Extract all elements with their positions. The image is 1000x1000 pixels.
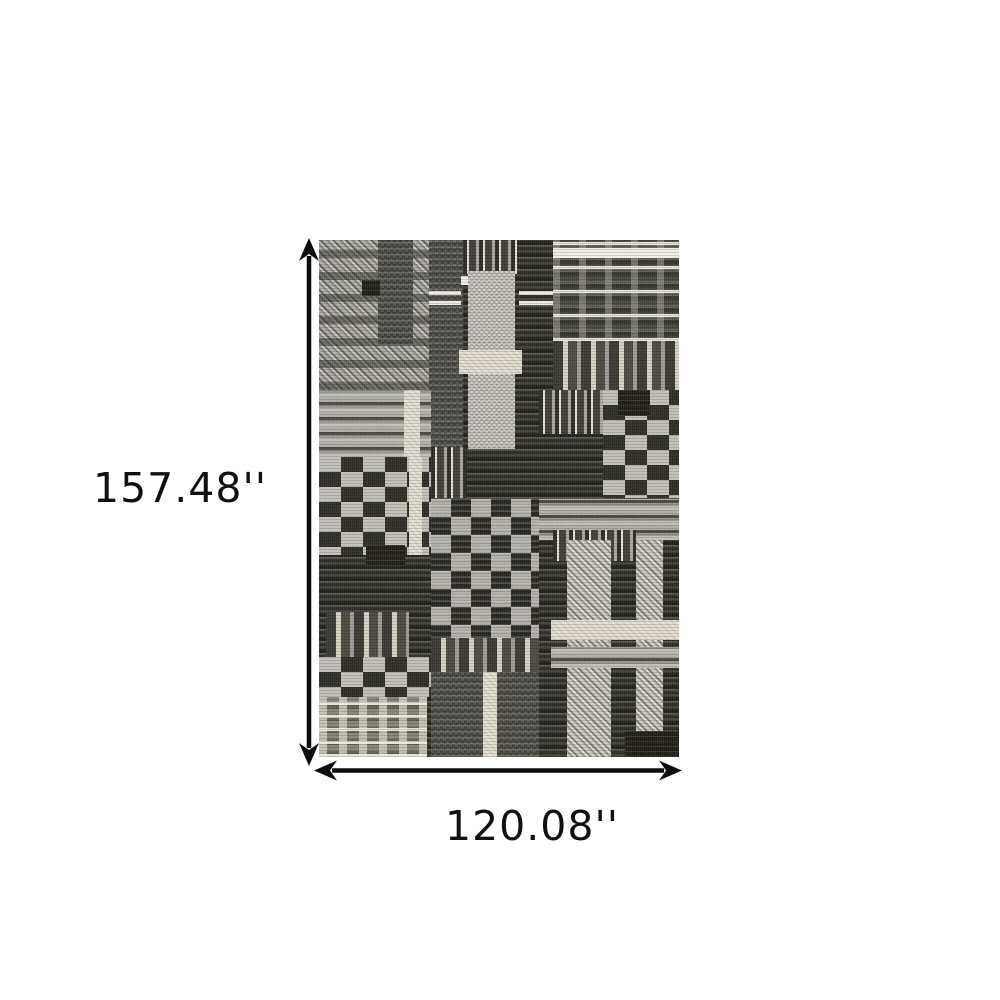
rug-patch-cream xyxy=(483,672,497,757)
rug-patch-cream xyxy=(404,390,420,457)
rug-patch-blocks-grid xyxy=(431,499,539,639)
rug-image xyxy=(319,240,679,757)
rug-patch-whiteband xyxy=(553,248,679,258)
rug-patch-darkcol xyxy=(429,240,463,452)
rug-patch-black xyxy=(625,731,679,757)
rug-patch-hwhite xyxy=(519,289,553,305)
rug-patch-hlight xyxy=(551,647,679,668)
vertical-dimension-arrow xyxy=(296,236,322,768)
product-dimension-diagram: 157.48'' 120.08'' xyxy=(0,0,1000,1000)
rug-patch-vstripes xyxy=(431,638,539,672)
horizontal-dimension-arrow xyxy=(312,757,684,784)
rug-patch-cream xyxy=(459,350,522,374)
rug-patch-vfine xyxy=(431,447,467,499)
rug-patch-black xyxy=(362,280,380,296)
rug-patch-vstripes xyxy=(553,341,679,393)
width-dimension-label: 120.08'' xyxy=(445,802,619,850)
rug-patch-diag xyxy=(319,240,431,390)
rug-patch-vfine xyxy=(539,390,604,434)
rug-patch-black xyxy=(366,545,406,566)
height-dimension-label: 157.48'' xyxy=(93,464,267,512)
rug-patch-hwhite xyxy=(429,289,461,305)
rug-patch-vfine xyxy=(463,240,517,274)
rug-patch-black xyxy=(618,390,650,416)
rug-patch-vstripes xyxy=(326,612,409,656)
rug-patch-cream xyxy=(551,620,679,640)
rug-patch-check xyxy=(319,697,427,757)
rug-patch-darkcol xyxy=(378,240,412,346)
rug-patch-cream xyxy=(409,457,422,555)
rug-patch-blocks-light xyxy=(319,657,431,697)
